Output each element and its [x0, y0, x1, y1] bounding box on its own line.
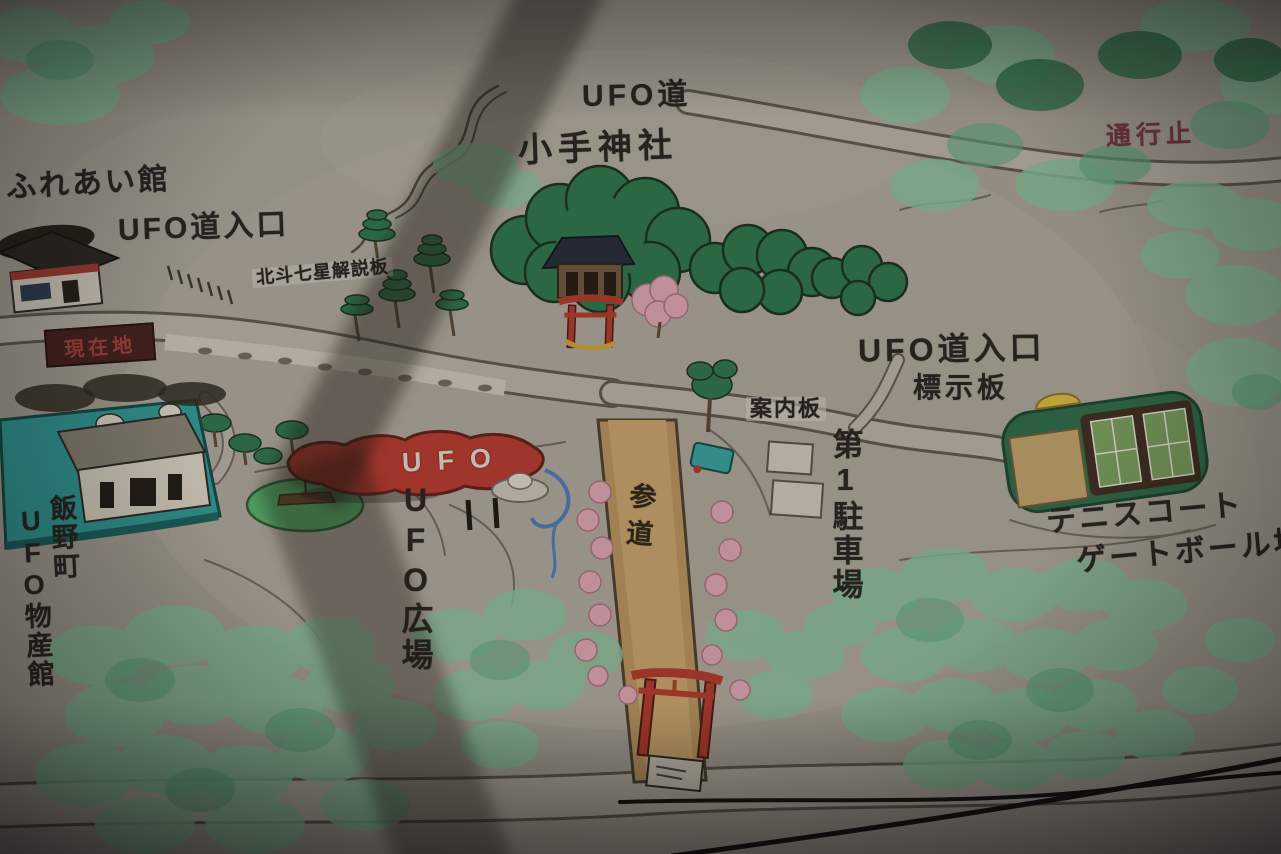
- label-road-closed: 通行止: [1106, 120, 1197, 150]
- current-location-sign: 現在地: [44, 322, 156, 368]
- label-iino-town: 飯野町: [45, 493, 80, 599]
- ufo-object-letters: UFO: [401, 443, 507, 478]
- label-info-board: 案内板: [746, 397, 826, 421]
- ufo-village-map-photo: UFO道 小手神社 通行止 ふれあい館 UFO道入口 北斗七星解説板 現在地 U…: [0, 0, 1281, 854]
- label-ufo-road: UFO道: [582, 79, 692, 113]
- torii-base-sign: [646, 756, 703, 791]
- label-ufo-road-entrance: UFO道入口: [117, 209, 289, 247]
- label-entrance-sign-line1: UFO道入口: [858, 330, 1046, 368]
- label-parking-no1: 第1駐車場: [828, 428, 861, 618]
- label-entrance-sign-line2: 標示板: [913, 373, 1009, 403]
- label-kote-shrine: 小手神社: [517, 127, 678, 169]
